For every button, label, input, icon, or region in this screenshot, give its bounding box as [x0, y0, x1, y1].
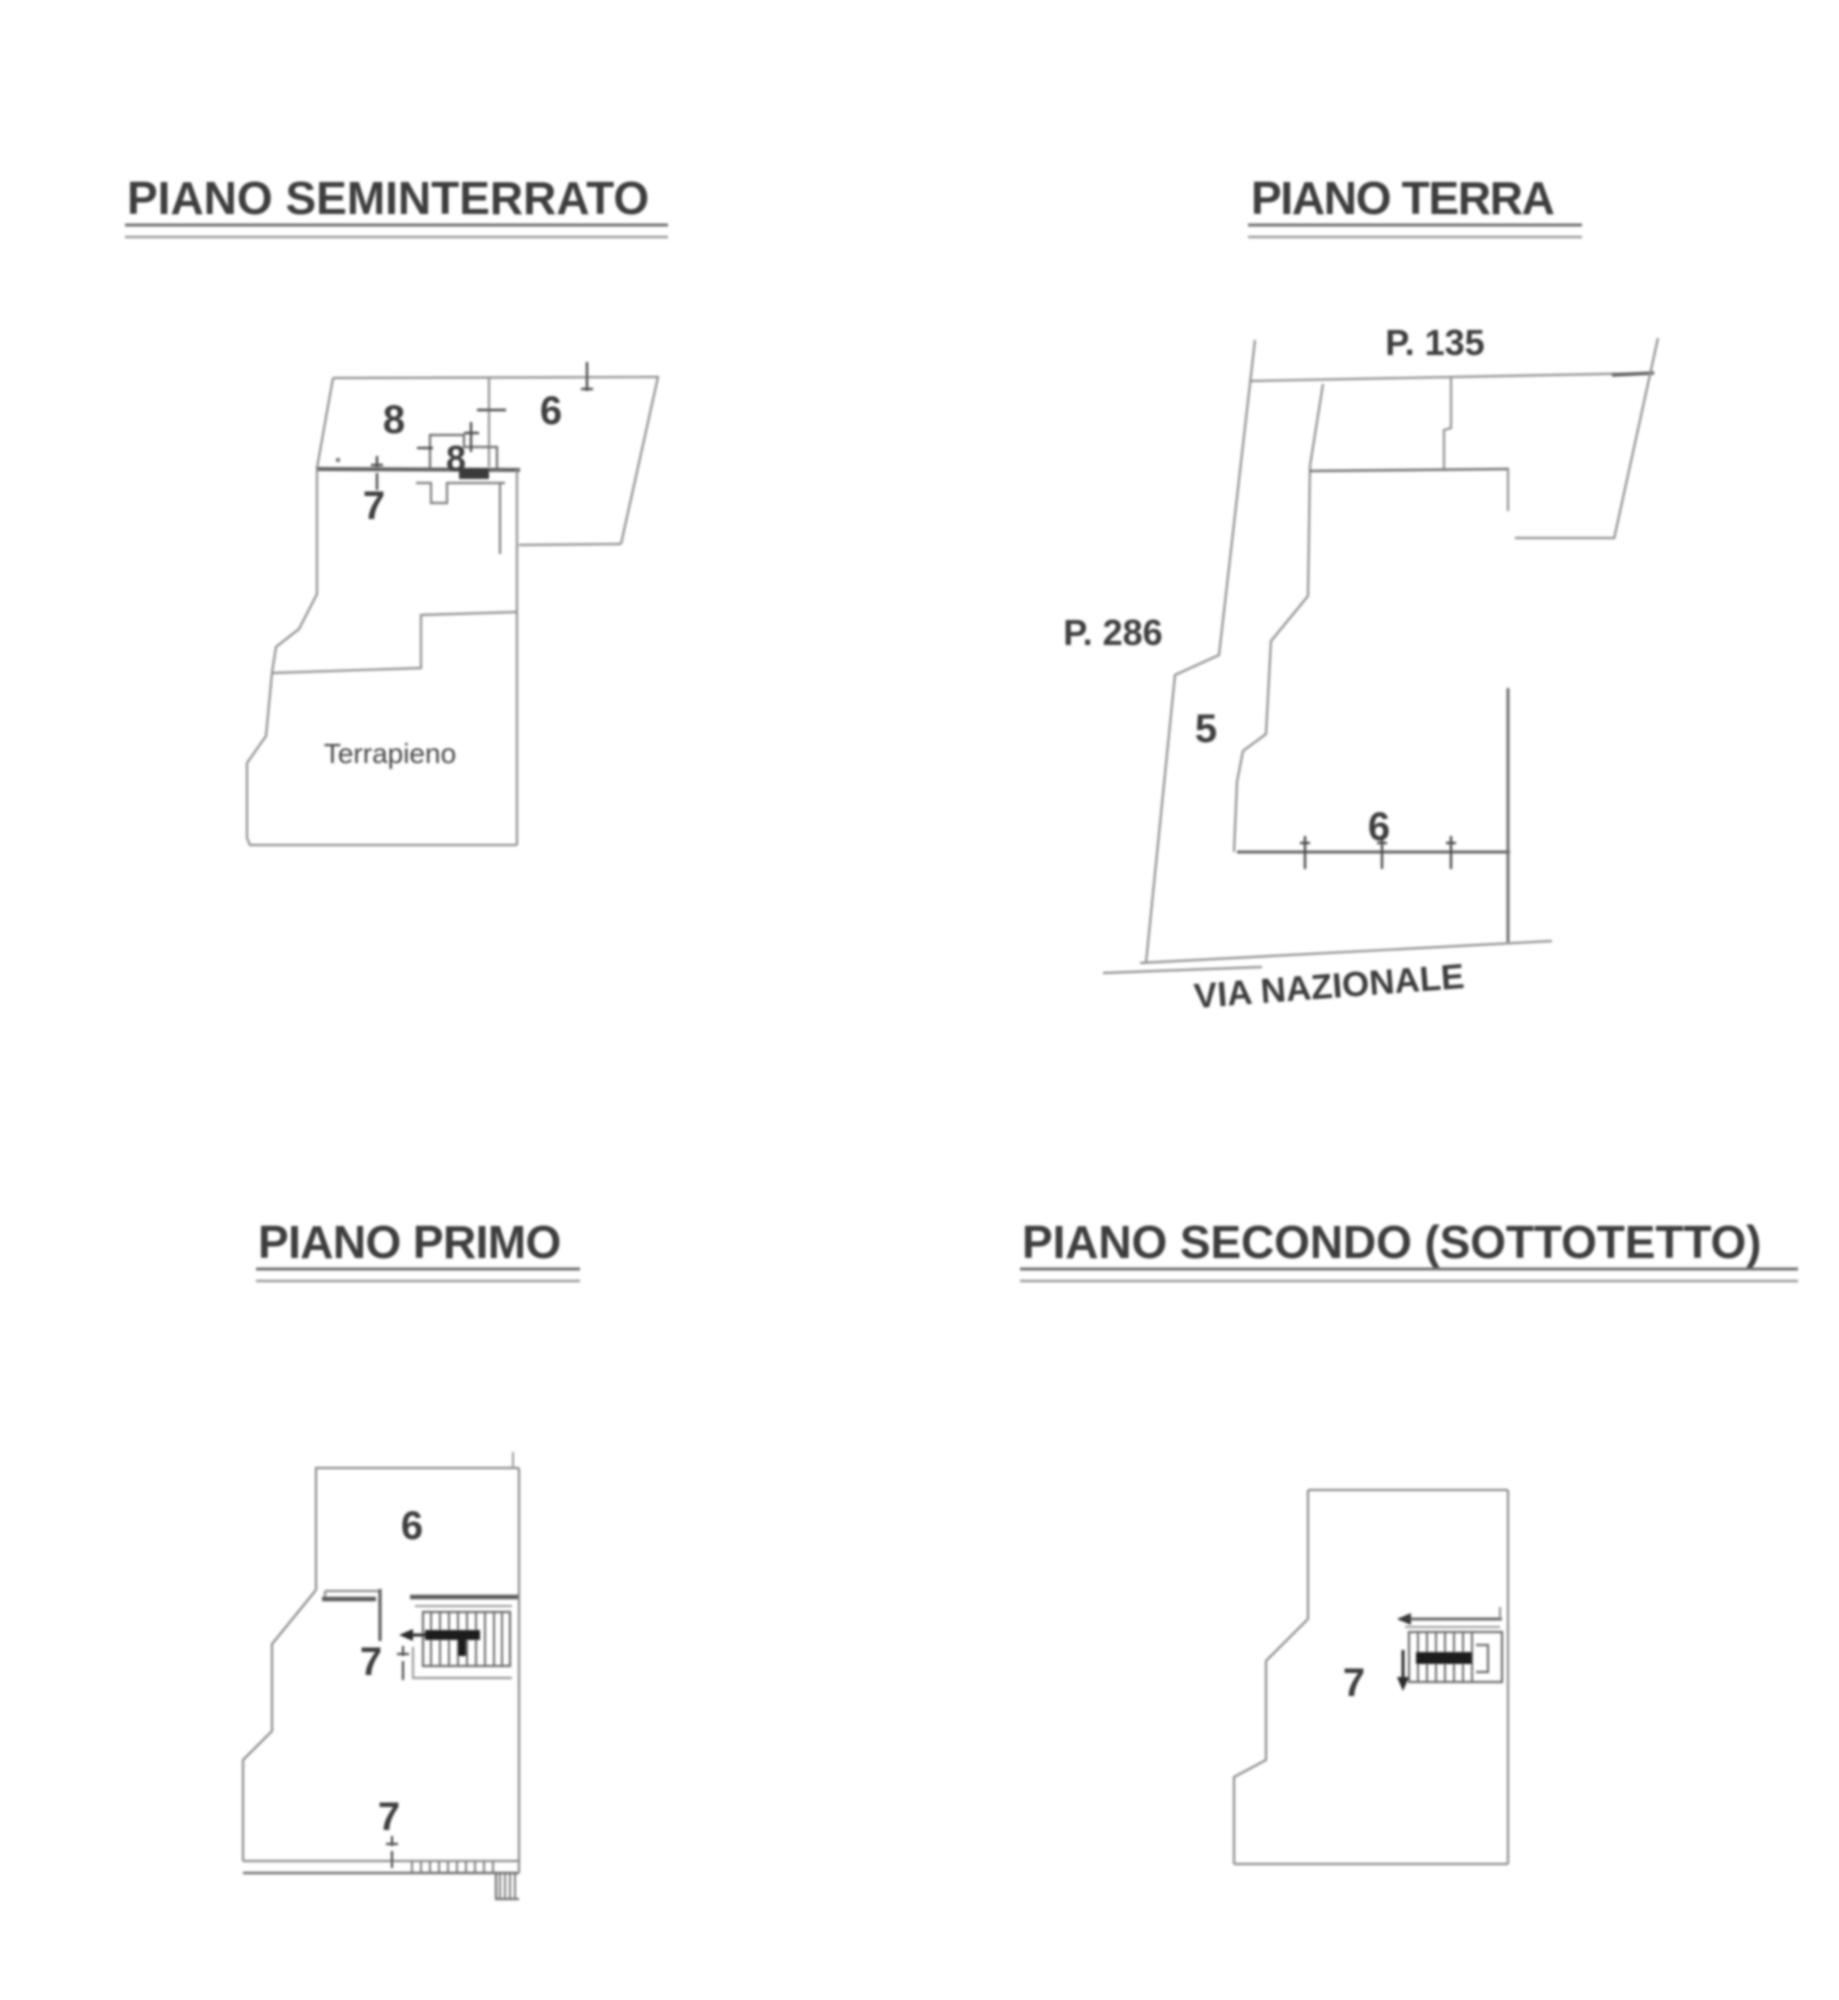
- svg-text:Terrapieno: Terrapieno: [324, 738, 456, 769]
- svg-text:PIANO PRIMO: PIANO PRIMO: [258, 1216, 561, 1268]
- svg-text:VIA NAZIONALE: VIA NAZIONALE: [1193, 957, 1466, 1016]
- svg-text:7: 7: [363, 484, 385, 528]
- svg-text:7: 7: [360, 1640, 382, 1684]
- svg-text:P. 135: P. 135: [1385, 322, 1484, 363]
- svg-text:8: 8: [383, 398, 405, 442]
- svg-text:6: 6: [1368, 805, 1390, 849]
- svg-text:5: 5: [1195, 707, 1217, 751]
- svg-text:PIANO TERRA: PIANO TERRA: [1251, 172, 1554, 224]
- svg-text:7: 7: [378, 1795, 400, 1839]
- svg-text:PIANO SECONDO (SOTTOTETTO): PIANO SECONDO (SOTTOTETTO): [1022, 1216, 1761, 1268]
- svg-text:8: 8: [446, 438, 466, 479]
- svg-text:7: 7: [1343, 1661, 1365, 1705]
- svg-text:PIANO SEMINTERRATO: PIANO SEMINTERRATO: [127, 172, 649, 224]
- svg-text:6: 6: [540, 389, 562, 433]
- svg-text:6: 6: [401, 1504, 423, 1548]
- svg-text:P. 286: P. 286: [1063, 612, 1162, 653]
